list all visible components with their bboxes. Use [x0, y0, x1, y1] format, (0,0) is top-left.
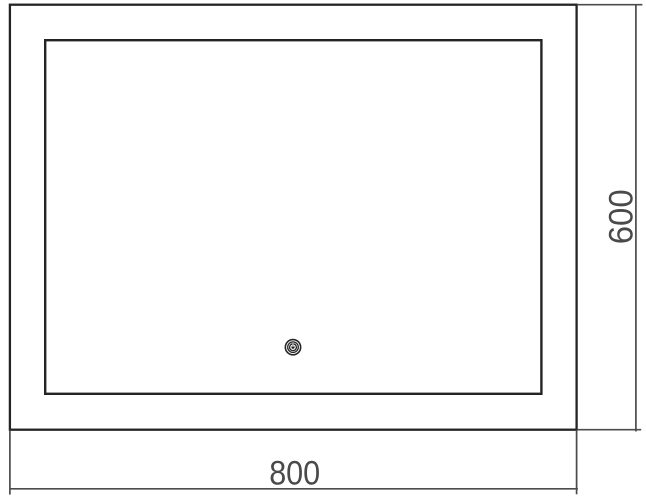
svg-text:600: 600	[603, 189, 641, 244]
svg-text:800: 800	[269, 455, 320, 493]
